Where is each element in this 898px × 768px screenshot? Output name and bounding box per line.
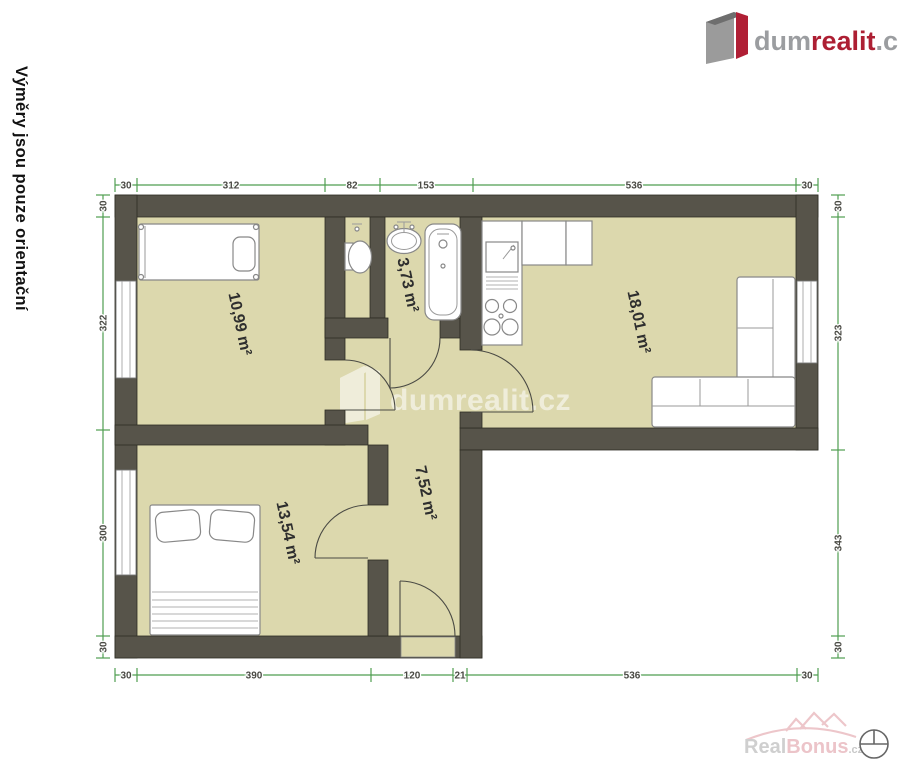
- dim-label: 30: [834, 200, 845, 212]
- dim-label: 30: [120, 181, 132, 192]
- dim-label: 30: [120, 671, 132, 682]
- floorplan-page: Výměry jsou pouze orientační dumrealit.c…: [0, 0, 898, 768]
- dim-label: 21: [454, 671, 466, 682]
- dimension-top: [115, 178, 818, 192]
- dim-label: 30: [801, 671, 813, 682]
- wall-top: [115, 195, 818, 217]
- dimension-bottom: [115, 668, 818, 682]
- compass-icon: [860, 730, 888, 758]
- dim-label: 82: [346, 181, 358, 192]
- dumrealit-logo-icon: [706, 12, 748, 64]
- wall-bathroom-left: [325, 217, 345, 360]
- logo-box-red-face: [736, 12, 748, 59]
- dim-label: 30: [801, 181, 813, 192]
- dim-label: 30: [99, 200, 110, 212]
- dim-label: 536: [626, 181, 643, 192]
- single-bed: [139, 224, 260, 280]
- wall-living-door-post: [460, 412, 482, 428]
- floorplan-svg: Výměry jsou pouze orientační dumrealit.c…: [0, 0, 898, 768]
- wall-bathroom-bottom-a: [325, 318, 388, 338]
- dim-label: 300: [99, 524, 110, 541]
- dim-label: 343: [834, 534, 845, 551]
- wall-bathroom-bottom-b: [440, 318, 460, 338]
- dim-label: 30: [834, 641, 845, 653]
- wall-bathroom-right: [460, 217, 482, 350]
- dim-label: 390: [246, 671, 263, 682]
- wall-living-bottom: [460, 428, 818, 450]
- window-bottom-bedroom: [116, 470, 136, 575]
- window-living-room: [797, 281, 817, 363]
- wall-bedroom-right-a: [368, 445, 388, 505]
- dumrealit-logo: dumrealit.cz: [706, 12, 898, 64]
- disclaimer-note: Výměry jsou pouze orientační: [12, 66, 30, 312]
- kitchen-counter: [482, 221, 522, 345]
- window-top-bedroom: [116, 281, 136, 378]
- dim-label: 322: [99, 314, 110, 331]
- dimension-left: [96, 195, 110, 658]
- wall-wc-divider: [370, 217, 385, 318]
- dim-label: 153: [418, 181, 435, 192]
- double-bed: [150, 505, 260, 635]
- dim-label: 120: [404, 671, 421, 682]
- bathtub: [425, 224, 461, 320]
- dim-label: 30: [99, 641, 110, 653]
- realbonus-text: RealBonus.cz: [744, 736, 864, 758]
- wall-room1-bottom: [115, 425, 368, 445]
- dim-label: 536: [624, 671, 641, 682]
- dimension-right: [831, 195, 845, 658]
- kitchen-cabinets: [522, 221, 592, 265]
- wall-hall-right: [460, 450, 482, 658]
- realbonus-logo: RealBonus.cz: [744, 713, 888, 758]
- dumrealit-logo-text: dumrealit.cz: [754, 26, 898, 56]
- dim-label: 312: [223, 181, 240, 192]
- dim-label: 323: [834, 324, 845, 341]
- wall-bedroom-right-b: [368, 560, 388, 636]
